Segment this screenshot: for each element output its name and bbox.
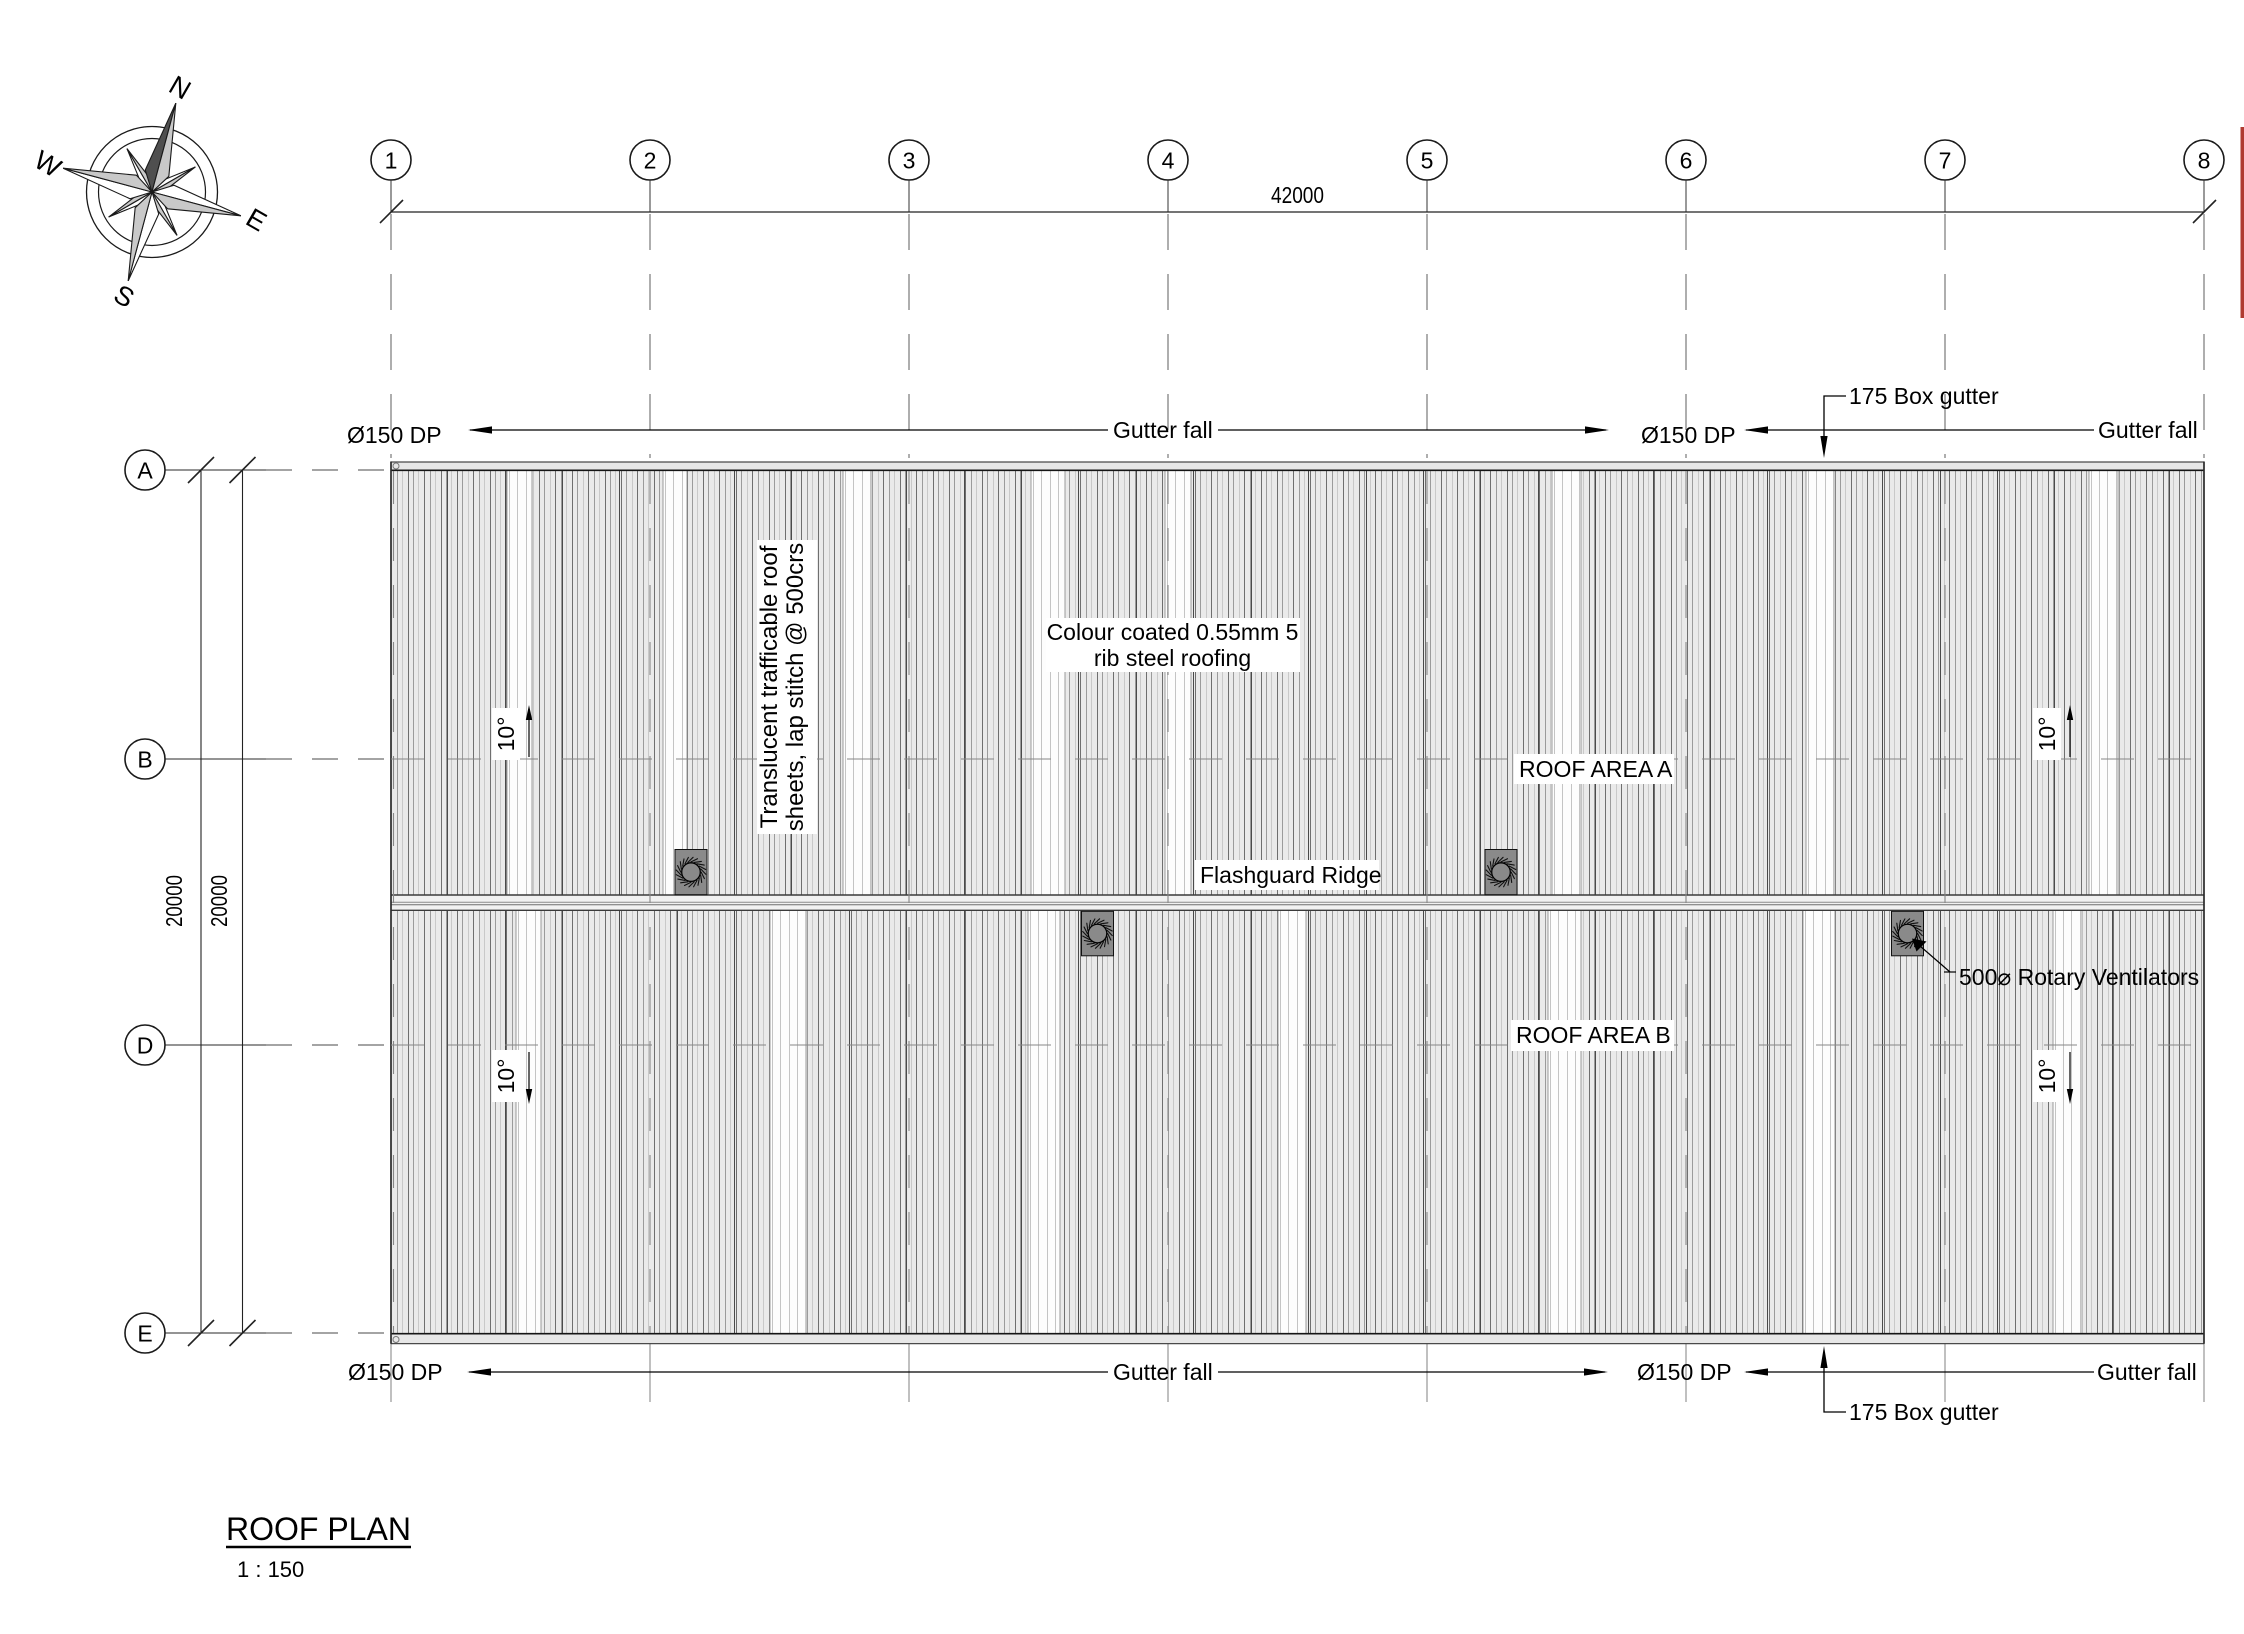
svg-text:10°: 10° bbox=[2034, 717, 2060, 752]
svg-text:175 Box gutter: 175 Box gutter bbox=[1849, 1399, 1999, 1425]
svg-text:A: A bbox=[137, 458, 153, 484]
svg-text:Gutter fall: Gutter fall bbox=[2098, 417, 2198, 443]
svg-text:Ø150 DP: Ø150 DP bbox=[1641, 422, 1736, 448]
svg-text:8: 8 bbox=[2198, 148, 2211, 174]
svg-text:Flashguard Ridge: Flashguard Ridge bbox=[1200, 862, 1382, 888]
svg-text:Translucent trafficable roofsh: Translucent trafficable roofsheets, lap … bbox=[756, 543, 809, 832]
svg-text:ROOF AREA A: ROOF AREA A bbox=[1519, 756, 1673, 782]
svg-text:5: 5 bbox=[1421, 148, 1434, 174]
svg-text:6: 6 bbox=[1680, 148, 1693, 174]
svg-text:10°: 10° bbox=[2034, 1059, 2060, 1094]
svg-text:1 : 150: 1 : 150 bbox=[237, 1557, 304, 1582]
svg-text:Ø150 DP: Ø150 DP bbox=[348, 1359, 443, 1385]
svg-text:Gutter fall: Gutter fall bbox=[1113, 1359, 1213, 1385]
svg-text:42000: 42000 bbox=[1271, 182, 1324, 208]
svg-text:2: 2 bbox=[644, 148, 657, 174]
svg-text:B: B bbox=[137, 747, 152, 773]
svg-text:1: 1 bbox=[385, 148, 398, 174]
svg-text:Colour coated 0.55mm 5: Colour coated 0.55mm 5 bbox=[1047, 619, 1299, 645]
svg-text:Gutter fall: Gutter fall bbox=[1113, 417, 1213, 443]
svg-text:Ø150 DP: Ø150 DP bbox=[1637, 1359, 1732, 1385]
svg-text:3: 3 bbox=[903, 148, 916, 174]
svg-text:ROOF AREA B: ROOF AREA B bbox=[1516, 1022, 1671, 1048]
svg-text:175 Box gutter: 175 Box gutter bbox=[1849, 383, 1999, 409]
svg-text:10°: 10° bbox=[493, 717, 519, 752]
svg-text:20000: 20000 bbox=[161, 875, 187, 927]
svg-text:10°: 10° bbox=[493, 1059, 519, 1094]
svg-text:7: 7 bbox=[1939, 148, 1952, 174]
svg-text:Gutter fall: Gutter fall bbox=[2097, 1359, 2197, 1385]
svg-text:4: 4 bbox=[1162, 148, 1175, 174]
svg-text:rib steel roofing: rib steel roofing bbox=[1094, 645, 1251, 671]
svg-text:ROOF PLAN: ROOF PLAN bbox=[226, 1511, 411, 1547]
svg-text:E: E bbox=[137, 1321, 152, 1347]
svg-text:Ø150 DP: Ø150 DP bbox=[347, 422, 442, 448]
svg-text:D: D bbox=[137, 1033, 154, 1059]
svg-text:20000: 20000 bbox=[206, 875, 232, 927]
svg-text:500⌀ Rotary Ventilators: 500⌀ Rotary Ventilators bbox=[1959, 964, 2199, 990]
